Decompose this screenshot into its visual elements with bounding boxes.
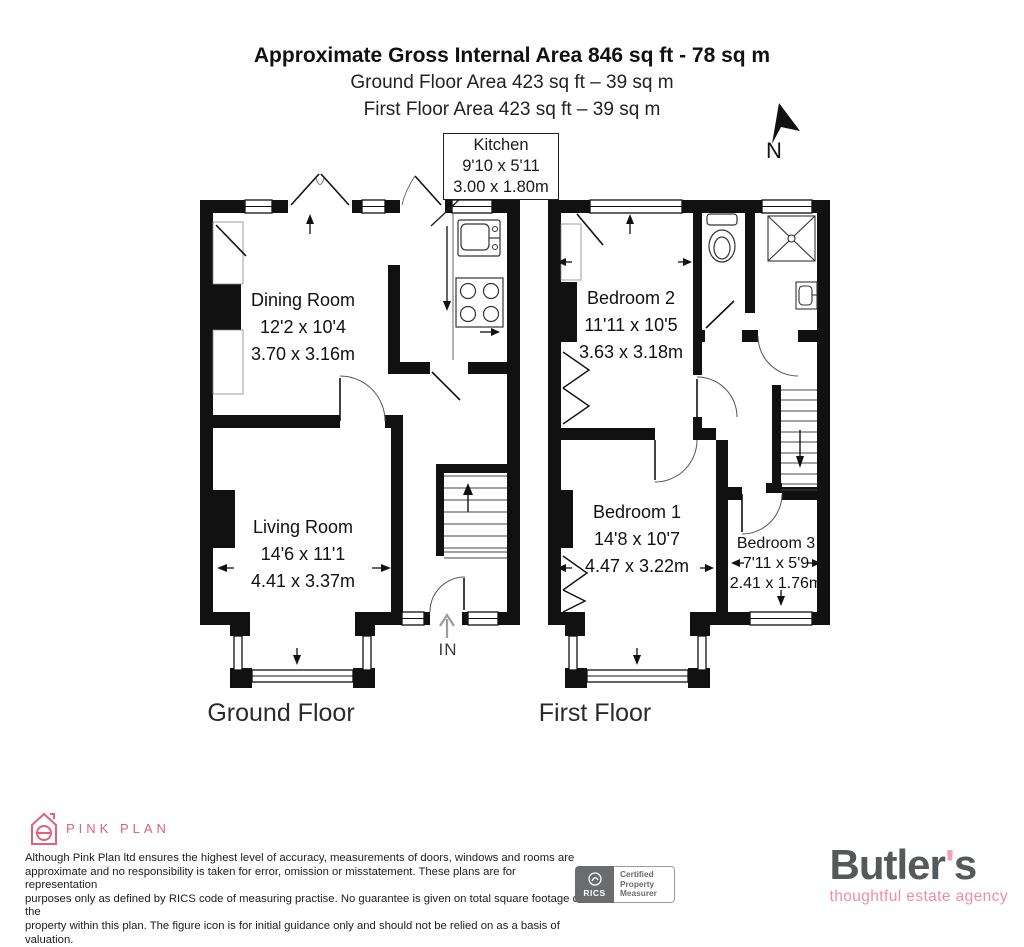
north-label: N — [766, 138, 782, 164]
room-label-living: Living Room 14'6 x 11'1 4.41 x 3.37m — [251, 514, 355, 595]
room-size-metric: 3.70 x 3.16m — [251, 341, 355, 368]
ground-floor-plan — [200, 174, 520, 688]
rics-emblem: RICS — [575, 866, 614, 903]
butlers-logo: Butler's thoughtful estate agency — [829, 843, 1008, 906]
room-name: Living Room — [251, 514, 355, 541]
disclaimer-line: Although Pink Plan ltd ensures the highe… — [25, 852, 585, 866]
rics-badge: RICS Certified Property Measurer — [575, 866, 675, 903]
page-title: Approximate Gross Internal Area 846 sq f… — [12, 42, 1012, 69]
pink-plan-house-icon — [27, 810, 61, 848]
room-size-imperial: 9'10 x 5'11 — [444, 156, 558, 177]
room-name: Dining Room — [251, 287, 355, 314]
toilet-icon — [707, 214, 737, 262]
room-size-metric: 4.47 x 3.22m — [585, 553, 689, 580]
kitchen-units — [453, 213, 503, 360]
room-name: Bedroom 2 — [579, 285, 683, 312]
room-label-bedroom1: Bedroom 1 14'8 x 10'7 4.47 x 3.22m — [585, 499, 689, 580]
ground-floor-label: Ground Floor — [207, 699, 354, 728]
first-floor-area: First Floor Area 423 sq ft – 39 sq m — [12, 96, 1012, 123]
room-size-metric: 3.00 x 1.80m — [444, 177, 558, 198]
disclaimer-line: purposes only as defined by RICS code of… — [25, 893, 585, 920]
room-label-dining: Dining Room 12'2 x 10'4 3.70 x 3.16m — [251, 287, 355, 368]
rics-text: Certified Property Measurer — [614, 866, 675, 903]
ground-floor-area: Ground Floor Area 423 sq ft – 39 sq m — [12, 69, 1012, 96]
chimney-breast — [213, 284, 241, 330]
butlers-apostrophe: ' — [945, 841, 954, 888]
entrance-in-arrow-icon — [440, 615, 454, 638]
room-label-bedroom2: Bedroom 2 11'11 x 10'5 3.63 x 3.18m — [579, 285, 683, 366]
disclaimer-line: property within this plan. The figure ic… — [25, 920, 585, 947]
rics-line: Measurer — [620, 889, 674, 899]
butlers-wordmark: Butler's — [829, 843, 1008, 887]
rics-lion-icon — [587, 871, 603, 887]
butlers-name-pre: Butler — [829, 841, 944, 888]
room-size-imperial: 7'11 x 5'9 — [730, 554, 823, 574]
disclaimer: Although Pink Plan ltd ensures the highe… — [25, 852, 585, 947]
staircase-up — [436, 464, 507, 558]
first-floor-plan — [548, 200, 830, 688]
bay-window — [230, 612, 375, 688]
chimney-breast — [213, 490, 235, 548]
butlers-name-post: s — [954, 841, 976, 888]
header: Approximate Gross Internal Area 846 sq f… — [12, 42, 1012, 123]
room-size-metric: 2.41 x 1.76m — [730, 574, 823, 594]
room-size-imperial: 14'8 x 10'7 — [585, 526, 689, 553]
basin-icon — [796, 282, 817, 309]
room-size-metric: 3.63 x 3.18m — [579, 339, 683, 366]
rics-org-label: RICS — [583, 888, 605, 898]
entrance-in-label: IN — [439, 640, 458, 660]
room-size-imperial: 11'11 x 10'5 — [579, 312, 683, 339]
chimney-breast — [561, 282, 577, 342]
chimney-breast — [561, 490, 573, 548]
room-size-metric: 4.41 x 3.37m — [251, 568, 355, 595]
kitchen-callout: Kitchen 9'10 x 5'11 3.00 x 1.80m — [443, 133, 559, 200]
first-floor-label: First Floor — [539, 699, 652, 728]
staircase-down — [766, 385, 817, 493]
pink-plan-wordmark: PINK PLAN — [66, 821, 170, 836]
room-name: Bedroom 1 — [585, 499, 689, 526]
disclaimer-line: approximate and no responsibility is tak… — [25, 866, 585, 893]
room-size-imperial: 12'2 x 10'4 — [251, 314, 355, 341]
room-name: Kitchen — [444, 135, 558, 156]
shower-icon — [768, 216, 815, 261]
room-label-bedroom3: Bedroom 3 7'11 x 5'9 2.41 x 1.76m — [730, 534, 823, 594]
butlers-tagline: thoughtful estate agency — [829, 888, 1008, 906]
room-size-imperial: 14'6 x 11'1 — [251, 541, 355, 568]
room-name: Bedroom 3 — [730, 534, 823, 554]
